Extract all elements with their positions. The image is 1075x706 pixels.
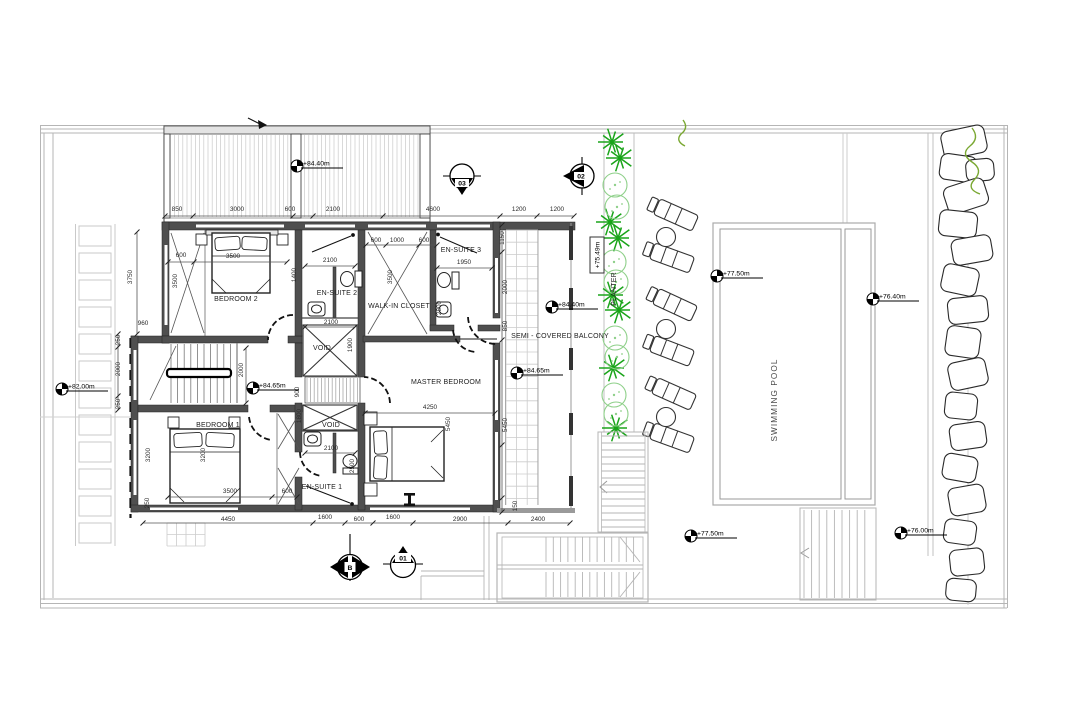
terrace-step xyxy=(79,334,111,354)
elevation-marker: +84.65m xyxy=(247,382,299,394)
section-marker-b: B xyxy=(330,534,370,581)
dimension-label: 1950 xyxy=(457,259,472,266)
rock-icon xyxy=(949,547,986,576)
elevation-label: +84.65m xyxy=(259,383,286,390)
elevation-label: +76.00m xyxy=(907,528,934,535)
section-marker-02: 02 xyxy=(563,157,594,195)
terrace-step xyxy=(79,442,111,462)
terrace-step xyxy=(79,523,111,543)
room-label: EN-SUITE 2 xyxy=(317,290,358,297)
dimension-label: 1200 xyxy=(512,206,527,213)
toilet-ensuite3 xyxy=(438,272,460,289)
dimension-label: 1000 xyxy=(390,237,405,244)
dimension-label: 2000 xyxy=(238,362,245,377)
dimension-label: 150 xyxy=(512,500,519,511)
rock-icon xyxy=(950,234,994,267)
terrace-step xyxy=(79,469,111,489)
dimension-label: 1200 xyxy=(550,206,565,213)
rock-icon xyxy=(939,263,980,298)
sink-ensuite1 xyxy=(304,432,321,446)
rock-wall xyxy=(679,120,995,605)
dimension-label: 4600 xyxy=(426,206,441,213)
elevation-label: +84.40m xyxy=(558,302,585,309)
room-label: VOID xyxy=(313,345,331,352)
dimension-label: 600 xyxy=(285,206,296,213)
section-marker-01: 01 xyxy=(383,546,423,578)
dimension-label: 960 xyxy=(138,320,149,327)
elevation-marker: +82.00m xyxy=(56,383,108,395)
terrace-step xyxy=(79,307,111,327)
room-label: WALK-IN CLOSET xyxy=(368,303,430,310)
rock-icon xyxy=(944,391,979,420)
bed-master xyxy=(364,412,444,496)
thin-partitions xyxy=(302,318,497,431)
dimension-label: 3200 xyxy=(145,447,152,462)
dimension-label: 3200 xyxy=(200,447,207,462)
tree-icon xyxy=(603,173,627,197)
dimension-label: 3500 xyxy=(226,253,241,260)
room-label: BEDROOM 1 xyxy=(196,422,240,429)
terrace-step xyxy=(79,361,111,381)
side-table-icon xyxy=(657,408,676,427)
dimension-label: 1900 xyxy=(347,337,354,352)
rock-icon xyxy=(938,209,979,239)
dimension-label: 1600 xyxy=(386,514,401,521)
room-label: PLANTER xyxy=(611,272,618,306)
dimension-label: 600 xyxy=(419,237,430,244)
room-label: VOID xyxy=(322,422,340,429)
bed-bedroom2 xyxy=(196,230,288,293)
room-label: MASTER BEDROOM xyxy=(411,379,481,386)
elevation-label: +75.49m xyxy=(595,241,602,268)
dimension-label: 3000 xyxy=(230,206,245,213)
dimension-label: 2900 xyxy=(453,516,468,523)
terrace-step xyxy=(79,253,111,273)
staircase xyxy=(150,343,237,403)
room-label: EN-SUITE 3 xyxy=(441,247,482,254)
dimension-label: 600 xyxy=(282,488,293,495)
terrace-step xyxy=(79,280,111,300)
dimension-label: 3500 xyxy=(387,269,394,284)
site-boundary xyxy=(40,125,1008,608)
sun-lounger-icon xyxy=(646,195,699,231)
svg-text:02: 02 xyxy=(577,174,585,181)
dimension-label: 850 xyxy=(502,320,509,331)
sun-lounger-icon xyxy=(644,374,697,410)
room-label: SWIMMING POOL xyxy=(770,359,779,442)
dimension-label: 250 xyxy=(115,334,122,345)
dimension-label: 600 xyxy=(354,516,365,523)
exterior-stairs xyxy=(167,432,876,602)
dimension-label: 1600 xyxy=(318,514,333,521)
sun-loungers xyxy=(642,195,699,453)
shrub-icon xyxy=(602,415,627,442)
dimension-label: 600 xyxy=(176,252,187,259)
dimension-label: 2100 xyxy=(323,257,338,264)
rock-icon xyxy=(941,452,979,484)
rock-icon xyxy=(942,518,977,546)
dimension-label: 2100 xyxy=(324,319,339,326)
dimension-label: 2100 xyxy=(324,445,339,452)
shrub-icon xyxy=(596,209,621,236)
dimension-label: 2000 xyxy=(502,279,509,294)
dimension-label: 2400 xyxy=(531,516,546,523)
elevation-label: +77.50m xyxy=(723,271,750,278)
elevation-marker: +77.50m xyxy=(685,530,737,542)
dimension-label: 2100 xyxy=(326,206,341,213)
dimension-label: 2000 xyxy=(115,361,122,376)
rock-icon xyxy=(945,578,977,603)
dimension-label: 5450 xyxy=(445,416,452,431)
swimming-pool xyxy=(713,133,933,556)
dimension-label: 1150 xyxy=(499,231,506,245)
rock-icon xyxy=(947,483,987,517)
dimension-label: 5450 xyxy=(502,417,509,432)
svg-text:03: 03 xyxy=(458,181,466,188)
terrace-step xyxy=(79,496,111,516)
dimension-label: 250 xyxy=(115,398,122,409)
sink-ensuite2 xyxy=(308,302,325,316)
dimension-label: 4250 xyxy=(423,404,438,411)
terrace-step xyxy=(79,415,111,435)
elevation-label: +76.40m xyxy=(879,294,906,301)
elevation-marker: +76.00m xyxy=(895,527,947,539)
side-table-icon xyxy=(657,228,676,247)
elevation-marker: +76.40m xyxy=(867,293,919,305)
dimension-label: 2800 xyxy=(436,300,443,315)
rock-icon xyxy=(948,421,987,452)
elevation-marker: +84.65m xyxy=(511,367,563,379)
dimension-label: 3500 xyxy=(172,273,179,288)
room-label: BEDROOM 2 xyxy=(214,296,258,303)
elevation-marker: +77.50m xyxy=(711,270,763,282)
dimension-label: 3750 xyxy=(127,269,134,284)
elevation-label: +77.50m xyxy=(697,531,724,538)
elevation-label: +84.40m xyxy=(303,161,330,168)
tree-icon xyxy=(605,195,629,219)
bridge-landing xyxy=(305,377,360,403)
section-marker-03: 03 xyxy=(443,164,481,195)
dimension-label: 2500 xyxy=(349,458,356,473)
svg-text:B: B xyxy=(348,565,353,572)
sun-lounger-icon xyxy=(645,285,697,322)
dimension-label: 250 xyxy=(144,497,151,508)
dimension-label: 3500 xyxy=(223,488,238,495)
steel-column-icon xyxy=(404,493,415,506)
terrace-step xyxy=(79,226,111,246)
dimension-label: 1800 xyxy=(296,408,303,423)
svg-text:01: 01 xyxy=(399,556,407,563)
boxed-elevation-marker: +75.49m xyxy=(590,237,604,273)
rock-icon xyxy=(944,325,982,359)
room-label: EN-SUITE 1 xyxy=(302,484,343,491)
dimension-label: 850 xyxy=(172,206,183,213)
tree-icon xyxy=(604,402,628,426)
dimension-label: 4450 xyxy=(221,516,236,523)
dimension-label: 900 xyxy=(294,386,301,397)
dimension-label: 600 xyxy=(371,237,382,244)
side-table-icon xyxy=(657,320,676,339)
floor-plan-svg: BEDROOM 2EN-SUITE 2WALK-IN CLOSETEN-SUIT… xyxy=(0,0,1075,706)
floor-plan-drawing: BEDROOM 2EN-SUITE 2WALK-IN CLOSETEN-SUIT… xyxy=(0,0,1075,706)
elevation-label: +82.00m xyxy=(68,384,95,391)
dimension-label: 1400 xyxy=(291,267,298,282)
room-label: SEMI - COVERED BALCONY xyxy=(511,333,609,340)
elevation-marker: +84.40m xyxy=(546,301,598,313)
elevation-label: +84.65m xyxy=(523,368,550,375)
rock-icon xyxy=(947,356,990,391)
toilet-ensuite2 xyxy=(341,271,363,287)
rock-icon xyxy=(947,295,989,325)
